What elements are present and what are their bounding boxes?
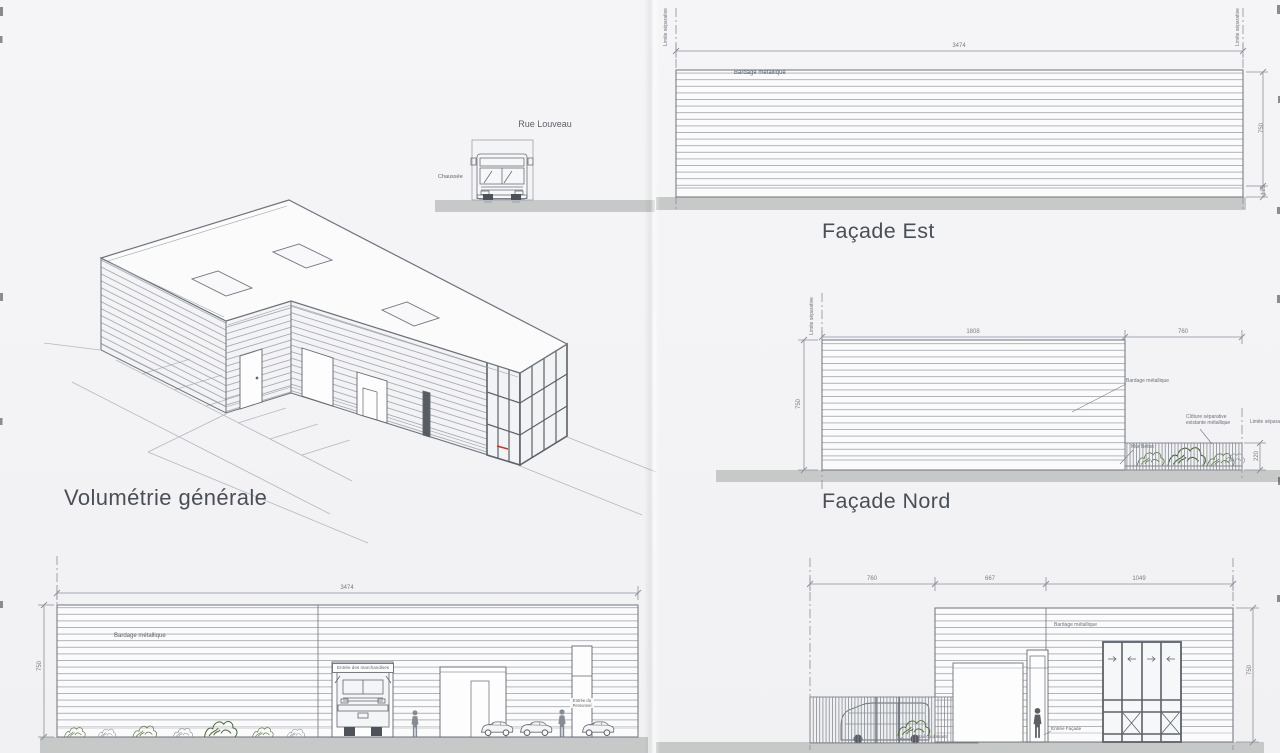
- drawing-sheet: Rue Louveau Chaussée Façade Est Façade N…: [0, 0, 1280, 753]
- boundary-label: Limite séparative: [809, 297, 815, 335]
- setback-dimension: 760: [844, 576, 900, 582]
- gate-label: Portail coulissant: [912, 734, 947, 739]
- facade-sud-drawing: [38, 556, 641, 740]
- boundary-label: Limite séparative: [663, 8, 669, 46]
- sectional-door: [953, 663, 1023, 742]
- elevation-drawings: [0, 0, 1280, 753]
- road-label: Chaussée: [438, 174, 463, 180]
- truck-drawing: [335, 672, 391, 736]
- ground-strip: [435, 200, 655, 212]
- height-dimension: 750: [1259, 123, 1265, 133]
- segment-dimension: 1049: [1111, 576, 1167, 582]
- concrete-wall-label: Mur Béton: [1131, 444, 1154, 450]
- staff-entrance-label: Entrée duPersonnel: [570, 698, 594, 708]
- facade-est-drawing: [673, 8, 1268, 210]
- metal-cladding: [823, 341, 1125, 459]
- fence-height-dimension: 220: [1254, 451, 1260, 461]
- fence-label-line2: existante métallique: [1186, 420, 1230, 426]
- ground-strip: [716, 470, 1280, 482]
- boundary-label: Limite séparative: [1235, 8, 1241, 46]
- ground-strip: [656, 197, 1246, 210]
- staff-entrance-line2: Personnel: [573, 703, 592, 708]
- entrance-door: [1027, 650, 1048, 742]
- height-dimension: 750: [796, 399, 802, 409]
- cladding-label: Bardage métallique: [734, 70, 786, 76]
- street-name-label: Rue Louveau: [500, 119, 590, 129]
- width-dimension: 3474: [325, 585, 369, 591]
- volumetrie-title: Volumétrie générale: [64, 485, 267, 511]
- base-dimension: 125: [1261, 185, 1267, 195]
- ground-strip: [656, 742, 1264, 753]
- goods-entrance: [332, 662, 393, 737]
- cladding-label: Bardage métallique: [114, 633, 166, 639]
- street-section-drawing: [471, 140, 533, 202]
- facade-ouest-drawing: [807, 558, 1259, 750]
- metal-cladding: [677, 71, 1243, 187]
- ground-strip: [40, 737, 648, 753]
- bus-drawing: [471, 154, 533, 202]
- height-dimension: 750: [1247, 665, 1253, 675]
- cladding-label: Bardage métallique: [1126, 378, 1169, 384]
- facade-entrance-label: Entrée Façade: [1051, 726, 1081, 731]
- boundary-label: Limite séparative: [1250, 419, 1280, 425]
- width-dimension: 1808: [951, 329, 995, 335]
- dimension-line: [1246, 69, 1268, 200]
- facade-nord-drawing: [798, 293, 1266, 492]
- staff-entrance: [572, 646, 592, 737]
- facade-est-title: Façade Est: [822, 219, 935, 244]
- width-dimension: 3474: [937, 43, 981, 49]
- segment-dimension: 667: [962, 576, 1018, 582]
- cladding-label: Bardage métallique: [1054, 622, 1097, 628]
- curtain-wall: [1103, 642, 1181, 742]
- goods-entrance-label: Entrée des marchandises: [332, 663, 394, 673]
- facade-nord-title: Façade Nord: [822, 489, 951, 514]
- height-dimension: 750: [37, 661, 43, 671]
- offset-dimension: 760: [1161, 329, 1205, 335]
- fence-label: Clôture séparativeexistante métallique: [1186, 414, 1242, 426]
